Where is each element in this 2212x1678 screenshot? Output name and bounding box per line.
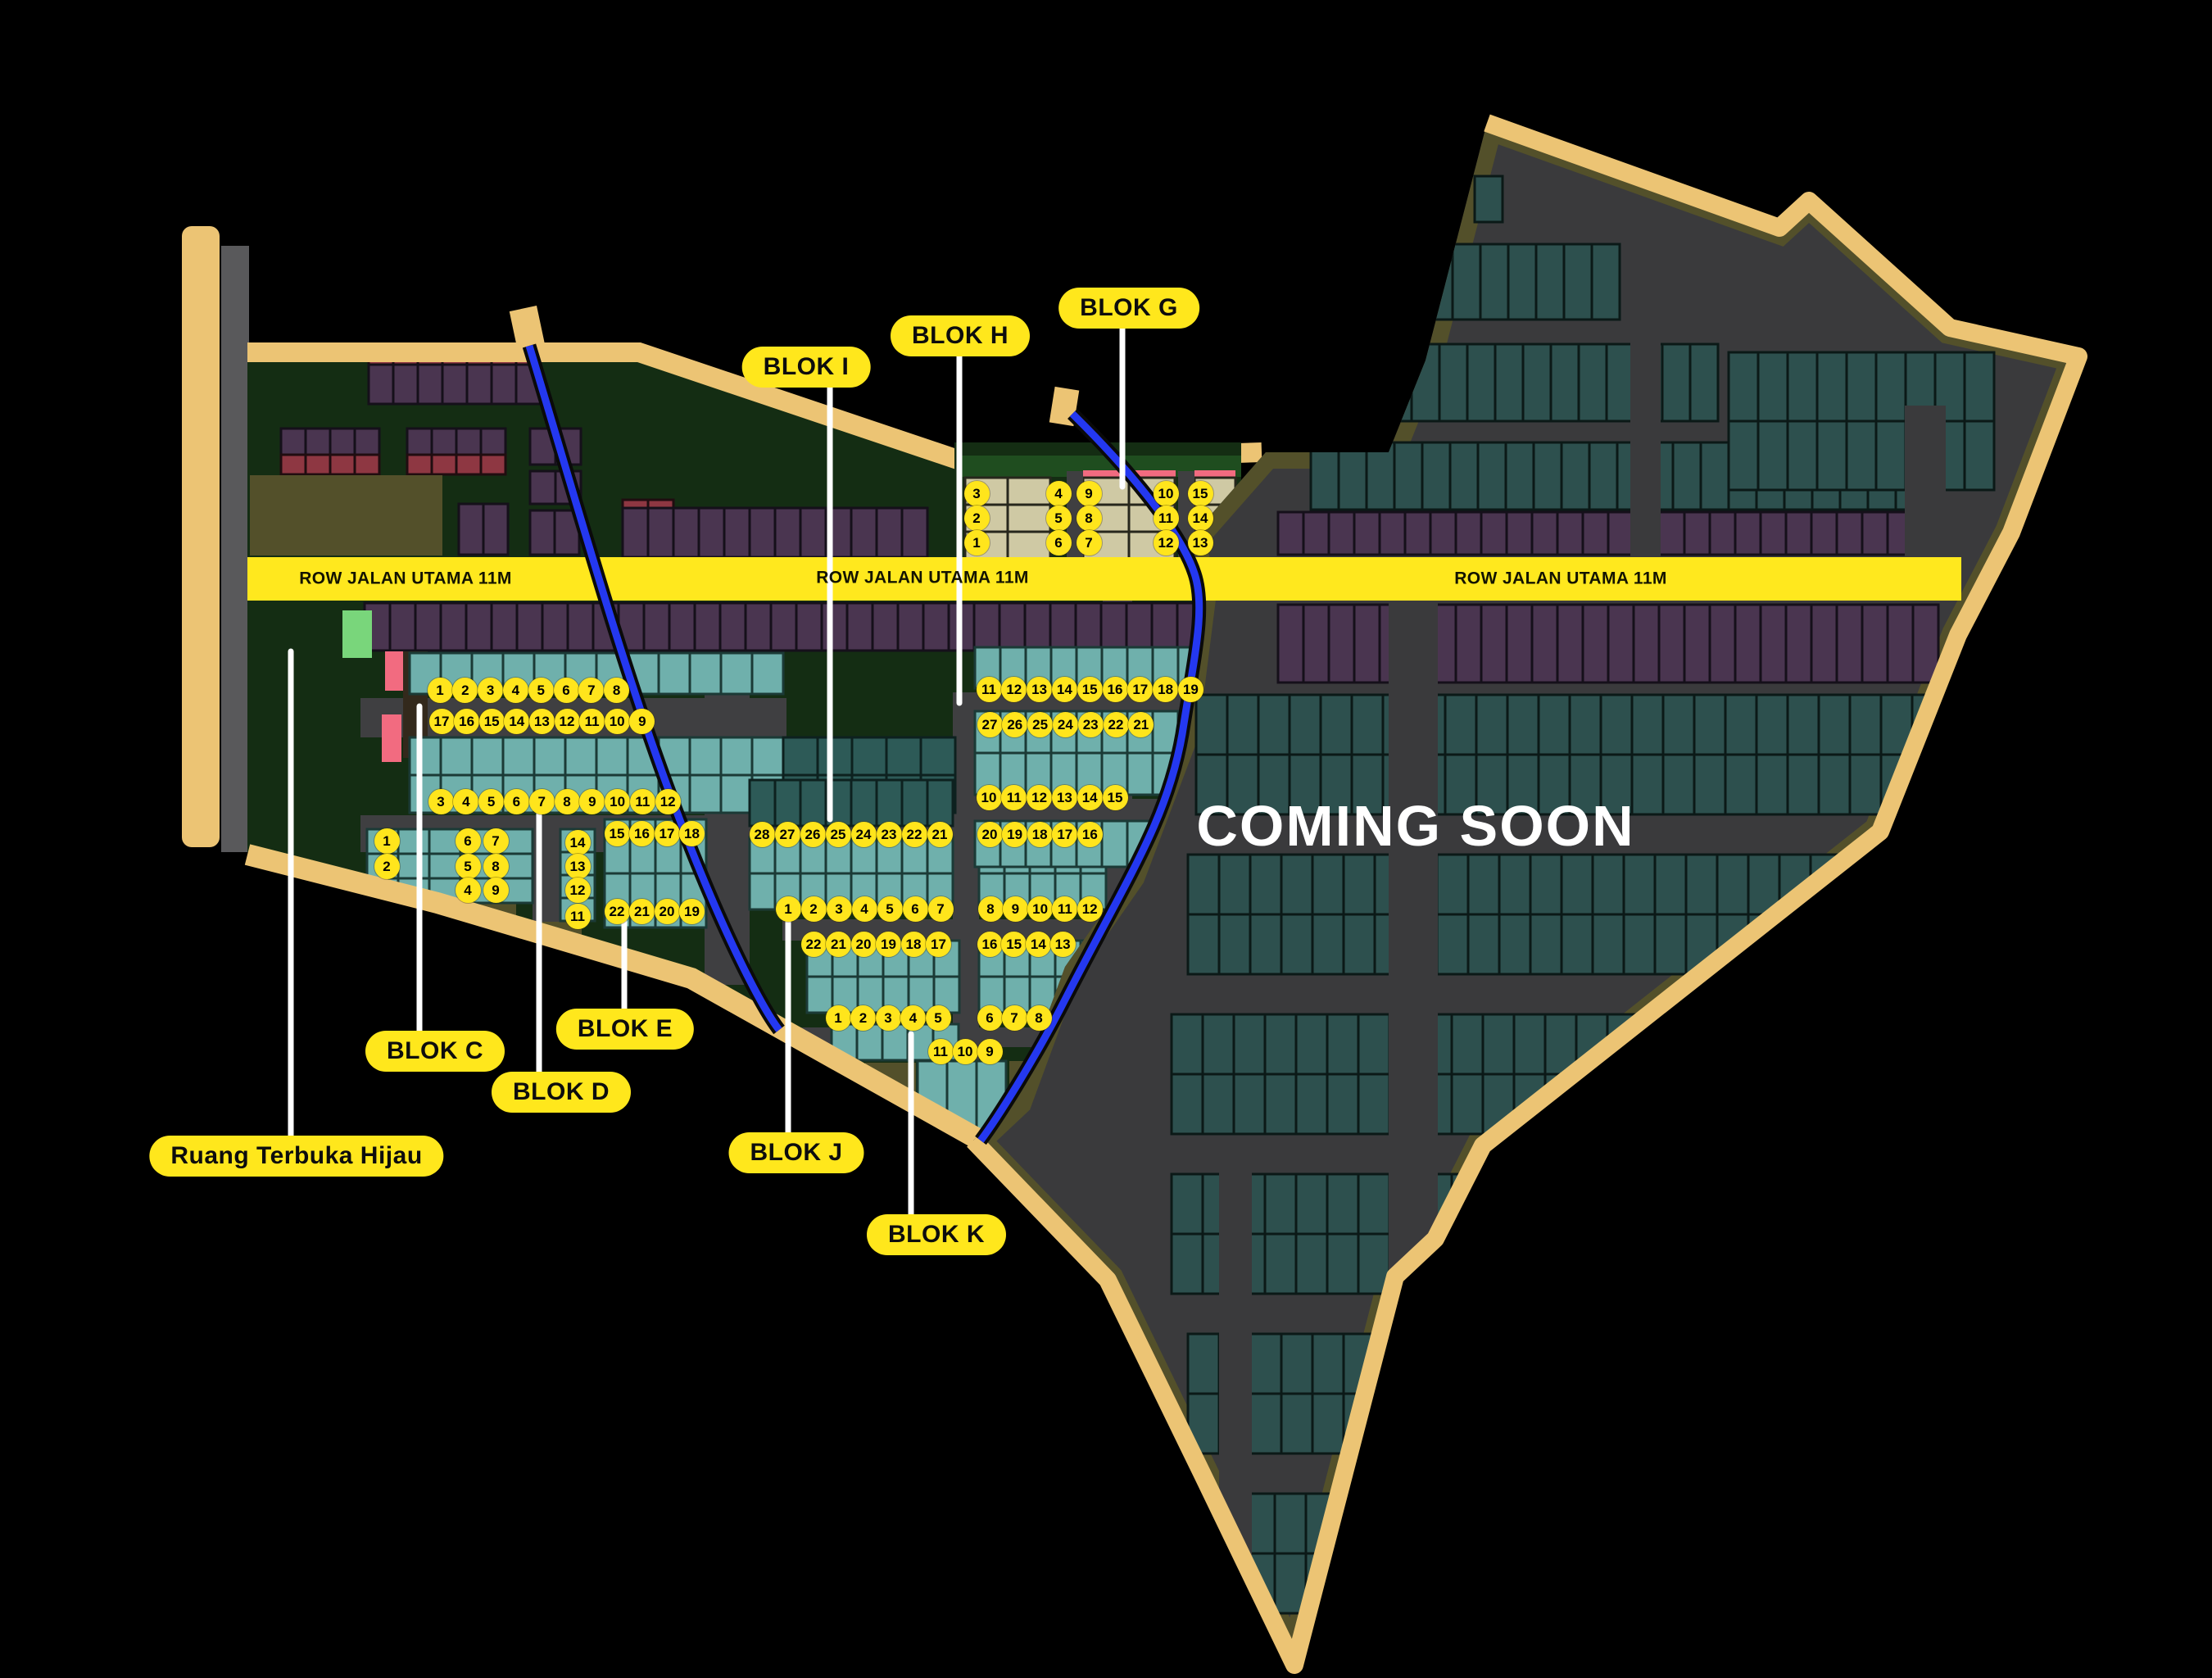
lot-marker-h_row5-9[interactable]: 9	[1003, 896, 1028, 922]
lot-marker-i_low-18[interactable]: 18	[901, 932, 927, 957]
lot-marker-i_top-26[interactable]: 26	[800, 822, 826, 847]
lot-marker-i_top-25[interactable]: 25	[826, 822, 851, 847]
lot-marker-d_m2-9[interactable]: 9	[483, 878, 509, 903]
lot-marker-d_top-4[interactable]: 4	[453, 789, 478, 814]
lot-marker-h_row6-14[interactable]: 14	[1026, 932, 1051, 957]
lot-marker-g1-15[interactable]: 15	[1188, 481, 1213, 506]
lot-marker-e_bottom-21[interactable]: 21	[629, 899, 655, 924]
lot-marker-d_top-12[interactable]: 12	[655, 789, 681, 814]
lot-marker-d_m2-8[interactable]: 8	[483, 854, 509, 879]
lot-marker-h_row4-18[interactable]: 18	[1027, 822, 1053, 847]
lot-marker-i_top-27[interactable]: 27	[775, 822, 800, 847]
lot-marker-d_m1-5[interactable]: 5	[456, 854, 481, 879]
lot-marker-c2-14[interactable]: 14	[504, 709, 529, 734]
lot-marker-j_row-3[interactable]: 3	[876, 1005, 901, 1031]
lot-marker-i_mid-7[interactable]: 7	[928, 896, 954, 922]
lot-marker-i_top-23[interactable]: 23	[877, 822, 902, 847]
lot-marker-g2-2[interactable]: 2	[964, 506, 990, 531]
lot-marker-i_mid-4[interactable]: 4	[852, 896, 877, 922]
lot-marker-g3-7[interactable]: 7	[1077, 530, 1102, 556]
lot-marker-g1-9[interactable]: 9	[1077, 481, 1102, 506]
lot-marker-h_row3-12[interactable]: 12	[1027, 785, 1052, 810]
lot-marker-h_row1-16[interactable]: 16	[1103, 677, 1128, 702]
lot-marker-e_top-16[interactable]: 16	[629, 821, 655, 846]
lot-marker-i_top-28[interactable]: 28	[750, 822, 775, 847]
road-label-west: ROW JALAN UTAMA 11M	[299, 570, 512, 587]
lot-marker-h_row7-7[interactable]: 7	[1002, 1005, 1027, 1031]
lot-marker-c2-17[interactable]: 17	[429, 709, 455, 734]
lot-marker-d_top-11[interactable]: 11	[630, 789, 655, 814]
lot-marker-c2-16[interactable]: 16	[454, 709, 479, 734]
lot-marker-e_top-15[interactable]: 15	[605, 821, 630, 846]
lot-marker-i_mid-2[interactable]: 2	[801, 896, 827, 922]
lot-marker-c2-10[interactable]: 10	[605, 709, 630, 734]
lot-marker-d_top-3[interactable]: 3	[428, 789, 454, 814]
lot-marker-g3-12[interactable]: 12	[1154, 530, 1179, 556]
lot-marker-d_top-9[interactable]: 9	[579, 789, 605, 814]
lot-marker-d_top-10[interactable]: 10	[605, 789, 630, 814]
lot-marker-c2-12[interactable]: 12	[555, 709, 580, 734]
lot-marker-h_row5-12[interactable]: 12	[1077, 896, 1103, 922]
lot-marker-h_row5-10[interactable]: 10	[1027, 896, 1053, 922]
lot-marker-d_right-12[interactable]: 12	[565, 878, 591, 903]
lot-marker-g3-6[interactable]: 6	[1046, 530, 1072, 556]
lot-marker-h_row2-22[interactable]: 22	[1104, 712, 1129, 737]
lot-marker-d_m1-4[interactable]: 4	[456, 878, 481, 903]
lot-marker-j_row-2[interactable]: 2	[850, 1005, 876, 1031]
lot-marker-h_row6-16[interactable]: 16	[977, 932, 1003, 957]
lot-marker-d_right-14[interactable]: 14	[565, 830, 591, 855]
lot-marker-i_top-21[interactable]: 21	[927, 822, 953, 847]
lot-marker-c1-5[interactable]: 5	[528, 678, 554, 703]
lot-marker-k_row-11[interactable]: 11	[928, 1039, 954, 1064]
lot-marker-g2-8[interactable]: 8	[1077, 506, 1102, 531]
lot-marker-c2-15[interactable]: 15	[479, 709, 505, 734]
lot-marker-c1-2[interactable]: 2	[452, 678, 478, 703]
siteplan-map	[0, 0, 2212, 1678]
lot-marker-g1-3[interactable]: 3	[964, 481, 990, 506]
lot-marker-h_row1-12[interactable]: 12	[1001, 677, 1027, 702]
lot-marker-i_mid-3[interactable]: 3	[827, 896, 852, 922]
lot-marker-i_low-20[interactable]: 20	[851, 932, 877, 957]
lot-marker-h_row2-26[interactable]: 26	[1002, 712, 1027, 737]
lot-marker-i_low-22[interactable]: 22	[801, 932, 827, 957]
lot-marker-h_row7-6[interactable]: 6	[977, 1005, 1003, 1031]
lot-marker-c2-9[interactable]: 9	[629, 709, 655, 734]
label-blok-k: BLOK K	[867, 1214, 1006, 1255]
district-coming-soon	[973, 123, 2078, 1665]
label-blok-e: BLOK E	[556, 1009, 694, 1050]
lot-marker-h_row4-20[interactable]: 20	[977, 822, 1003, 847]
lot-marker-h_row5-11[interactable]: 11	[1052, 896, 1077, 922]
lot-marker-h_row1-19[interactable]: 19	[1178, 677, 1203, 702]
lot-marker-d_top-6[interactable]: 6	[504, 789, 529, 814]
lot-marker-h_row4-16[interactable]: 16	[1077, 822, 1103, 847]
lot-marker-c2-13[interactable]: 13	[529, 709, 555, 734]
west-boundary-road	[182, 226, 249, 852]
lot-marker-d_right-13[interactable]: 13	[565, 854, 591, 879]
lot-marker-h_row3-15[interactable]: 15	[1103, 785, 1128, 810]
lot-marker-j_row-4[interactable]: 4	[900, 1005, 926, 1031]
lot-marker-g3-1[interactable]: 1	[964, 530, 990, 556]
label-blok-j: BLOK J	[728, 1132, 863, 1173]
lot-marker-j_row-1[interactable]: 1	[826, 1005, 851, 1031]
lot-marker-c2-11[interactable]: 11	[579, 709, 605, 734]
coming-soon-text: COMING SOON	[1196, 797, 1634, 855]
lot-marker-c1-3[interactable]: 3	[478, 678, 503, 703]
lot-marker-g2-14[interactable]: 14	[1188, 506, 1213, 531]
lot-marker-h_row2-21[interactable]: 21	[1128, 712, 1154, 737]
lot-marker-i_mid-5[interactable]: 5	[877, 896, 903, 922]
lot-marker-c1-1[interactable]: 1	[428, 678, 453, 703]
lot-marker-d_m1-6[interactable]: 6	[456, 828, 481, 854]
lot-marker-e_top-17[interactable]: 17	[655, 821, 680, 846]
road-label-center: ROW JALAN UTAMA 11M	[816, 569, 1029, 587]
lot-marker-h_row1-14[interactable]: 14	[1052, 677, 1077, 702]
label-blok-h: BLOK H	[891, 315, 1030, 356]
lot-marker-h_row7-8[interactable]: 8	[1027, 1005, 1052, 1031]
lot-marker-h_row4-17[interactable]: 17	[1052, 822, 1077, 847]
lot-marker-i_low-19[interactable]: 19	[876, 932, 901, 957]
lot-marker-h_row1-15[interactable]: 15	[1077, 677, 1103, 702]
lot-marker-h_row1-17[interactable]: 17	[1127, 677, 1153, 702]
lot-marker-i_mid-1[interactable]: 1	[776, 896, 801, 922]
lot-marker-d_left-1[interactable]: 1	[374, 828, 400, 854]
lot-marker-e_bottom-22[interactable]: 22	[605, 899, 630, 924]
lot-marker-h_row6-13[interactable]: 13	[1050, 932, 1076, 957]
siteplan-stage: ROW JALAN UTAMA 11M ROW JALAN UTAMA 11M …	[0, 0, 2212, 1678]
lot-marker-c1-4[interactable]: 4	[503, 678, 528, 703]
label-ruang-terbuka-hijau: Ruang Terbuka Hijau	[149, 1136, 443, 1177]
lot-marker-d_right-11[interactable]: 11	[565, 904, 591, 929]
lot-marker-d_top-5[interactable]: 5	[478, 789, 504, 814]
lot-marker-h_row3-10[interactable]: 10	[977, 785, 1002, 810]
lot-marker-k_row-10[interactable]: 10	[953, 1039, 978, 1064]
lot-marker-k_row-9[interactable]: 9	[977, 1039, 1003, 1064]
lot-marker-i_low-17[interactable]: 17	[926, 932, 951, 957]
lot-marker-h_row3-14[interactable]: 14	[1077, 785, 1103, 810]
lot-marker-g2-11[interactable]: 11	[1154, 506, 1179, 531]
lot-marker-h_row3-11[interactable]: 11	[1001, 785, 1027, 810]
lot-marker-h_row1-11[interactable]: 11	[977, 677, 1002, 702]
lot-marker-h_row4-19[interactable]: 19	[1002, 822, 1027, 847]
lot-marker-i_low-21[interactable]: 21	[826, 932, 851, 957]
label-blok-i: BLOK I	[742, 347, 871, 388]
lot-marker-d_left-2[interactable]: 2	[374, 854, 400, 879]
lot-marker-j_row-5[interactable]: 5	[926, 1005, 951, 1031]
lot-marker-h_row1-13[interactable]: 13	[1027, 677, 1052, 702]
lot-marker-g1-4[interactable]: 4	[1046, 481, 1072, 506]
lot-marker-g2-5[interactable]: 5	[1046, 506, 1072, 531]
lot-marker-h_row5-8[interactable]: 8	[978, 896, 1004, 922]
lot-marker-h_row1-18[interactable]: 18	[1153, 677, 1178, 702]
lot-marker-d_top-8[interactable]: 8	[555, 789, 580, 814]
lot-marker-i_mid-6[interactable]: 6	[903, 896, 928, 922]
label-blok-c: BLOK C	[365, 1031, 505, 1072]
lot-marker-h_row2-24[interactable]: 24	[1053, 712, 1078, 737]
road-label-east: ROW JALAN UTAMA 11M	[1454, 570, 1667, 587]
lot-marker-g1-10[interactable]: 10	[1154, 481, 1179, 506]
label-blok-g: BLOK G	[1058, 288, 1199, 329]
lot-marker-d_top-7[interactable]: 7	[529, 789, 555, 814]
lot-marker-e_bottom-20[interactable]: 20	[655, 899, 680, 924]
label-blok-d: BLOK D	[492, 1072, 631, 1113]
lot-marker-h_row2-27[interactable]: 27	[977, 712, 1003, 737]
lot-marker-h_row2-23[interactable]: 23	[1078, 712, 1104, 737]
lot-marker-h_row2-25[interactable]: 25	[1027, 712, 1053, 737]
lot-marker-c1-6[interactable]: 6	[554, 678, 579, 703]
lot-marker-c1-7[interactable]: 7	[578, 678, 604, 703]
lot-marker-i_top-24[interactable]: 24	[851, 822, 877, 847]
lot-marker-i_top-22[interactable]: 22	[902, 822, 927, 847]
lot-marker-g3-13[interactable]: 13	[1188, 530, 1213, 556]
lot-marker-e_top-18[interactable]: 18	[679, 821, 705, 846]
lot-marker-h_row3-13[interactable]: 13	[1052, 785, 1077, 810]
lot-marker-h_row6-15[interactable]: 15	[1001, 932, 1027, 957]
lot-marker-d_m2-7[interactable]: 7	[483, 828, 509, 854]
lot-marker-e_bottom-19[interactable]: 19	[679, 899, 705, 924]
lot-marker-c1-8[interactable]: 8	[604, 678, 629, 703]
